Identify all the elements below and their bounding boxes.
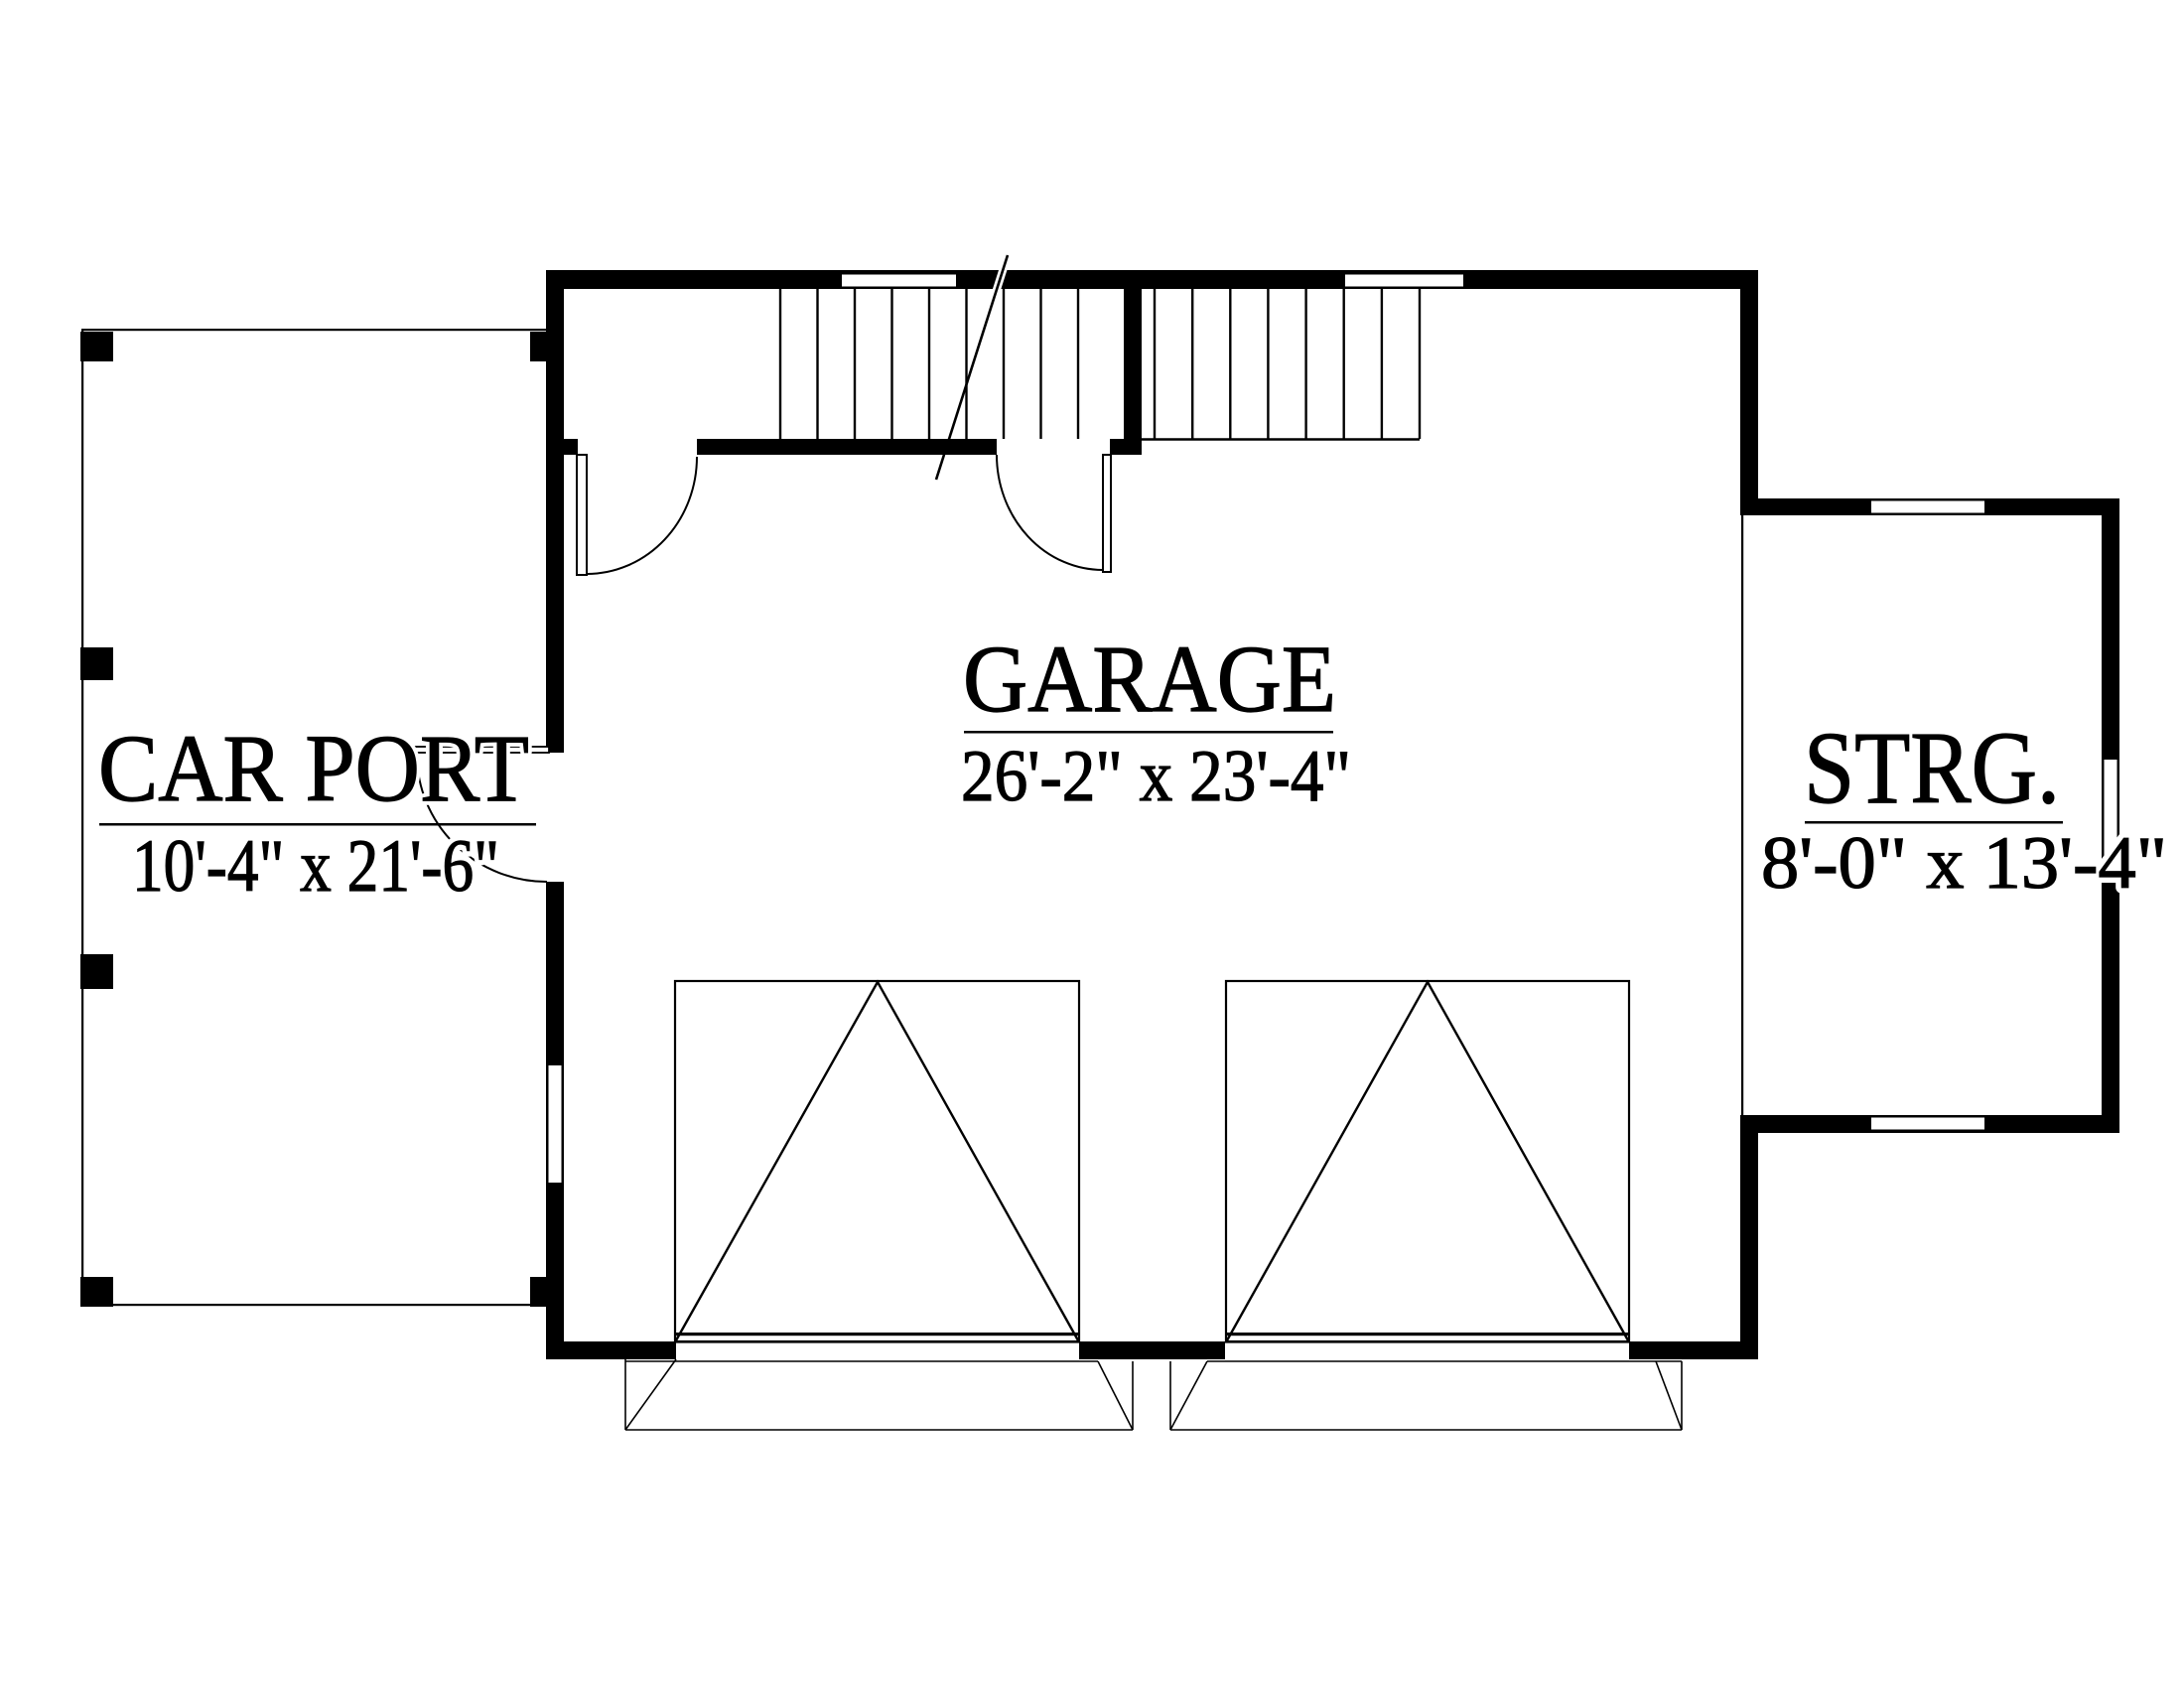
svg-text:GARAGE: GARAGE — [963, 626, 1336, 732]
svg-text:STRG.: STRG. — [1804, 711, 2060, 825]
svg-text:CAR PORT: CAR PORT — [98, 715, 529, 821]
svg-text:10'-4" x 21'-6": 10'-4" x 21'-6" — [132, 825, 499, 908]
svg-text:8'-0" x 13'-4": 8'-0" x 13'-4" — [1761, 822, 2167, 905]
svg-text:26'-2" x 23'-4": 26'-2" x 23'-4" — [961, 736, 1351, 817]
